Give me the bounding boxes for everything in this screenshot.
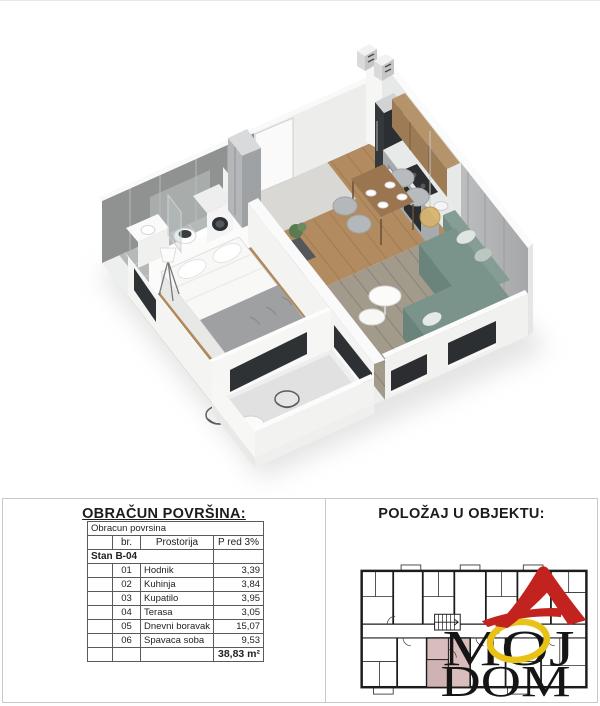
cell-br: 01 [113, 564, 141, 578]
cell-br: 06 [113, 634, 141, 648]
building-plan: MOJ DOM [356, 563, 596, 701]
total-row: 38,83 m² [88, 648, 264, 662]
cell-room: Hodnik [141, 564, 214, 578]
area-table: Obracun povrsina br. Prostorija P red 3%… [87, 521, 264, 662]
cell-br: 03 [113, 592, 141, 606]
cell-br: 04 [113, 606, 141, 620]
cell-area: 9,53 [214, 634, 264, 648]
building-plan-svg: MOJ DOM [356, 563, 596, 701]
listing-sheet: OBRAČUN POVRŠINA: Obracun povrsina br. P… [0, 0, 600, 706]
group-row: Stan B-04 [88, 550, 264, 564]
table-caption: Obracun povrsina [88, 522, 264, 536]
col-br: br. [113, 536, 141, 550]
table-caption-row: Obracun povrsina [88, 522, 264, 536]
position-panel: POLOŽAJ U OBJEKTU: [326, 499, 597, 702]
position-panel-title: POLOŽAJ U OBJEKTU: [326, 506, 597, 522]
cell-area: 3,84 [214, 578, 264, 592]
apartment-3d-render-svg [0, 1, 600, 498]
area-panel: OBRAČUN POVRŠINA: Obracun povrsina br. P… [3, 499, 325, 702]
terrace-chair [275, 391, 299, 408]
cell-room: Spavaca soba [141, 634, 214, 648]
total-area: 38,83 m² [214, 648, 264, 662]
table-row: 03 Kupatilo 3,95 [88, 592, 264, 606]
table-row: 02 Kuhinja 3,84 [88, 578, 264, 592]
cell-room: Kuhinja [141, 578, 214, 592]
table-row: 04 Terasa 3,05 [88, 606, 264, 620]
col-area: P red 3% [214, 536, 264, 550]
table-header-row: br. Prostorija P red 3% [88, 536, 264, 550]
area-panel-title: OBRAČUN POVRŠINA: [3, 506, 325, 522]
cell-area: 3,05 [214, 606, 264, 620]
dining-chair [347, 215, 371, 233]
cell-area: 15,07 [214, 620, 264, 634]
cell-room: Kupatilo [141, 592, 214, 606]
table-row: 05 Dnevni boravak 15,07 [88, 620, 264, 634]
apartment-3d-render [0, 1, 600, 498]
cell-br: 05 [113, 620, 141, 634]
table-row: 01 Hodnik 3,39 [88, 564, 264, 578]
col-room: Prostorija [141, 536, 214, 550]
info-section: OBRAČUN POVRŠINA: Obracun povrsina br. P… [2, 498, 598, 703]
unit-label: Stan B-04 [88, 550, 214, 564]
cell-br: 02 [113, 578, 141, 592]
logo-line2: DOM [441, 656, 571, 701]
cell-area: 3,39 [214, 564, 264, 578]
table-row: 06 Spavaca soba 9,53 [88, 634, 264, 648]
cell-room: Terasa [141, 606, 214, 620]
cell-room: Dnevni boravak [141, 620, 214, 634]
dining-chair [333, 197, 357, 215]
roof-vent-icon [357, 44, 394, 81]
cell-area: 3,95 [214, 592, 264, 606]
